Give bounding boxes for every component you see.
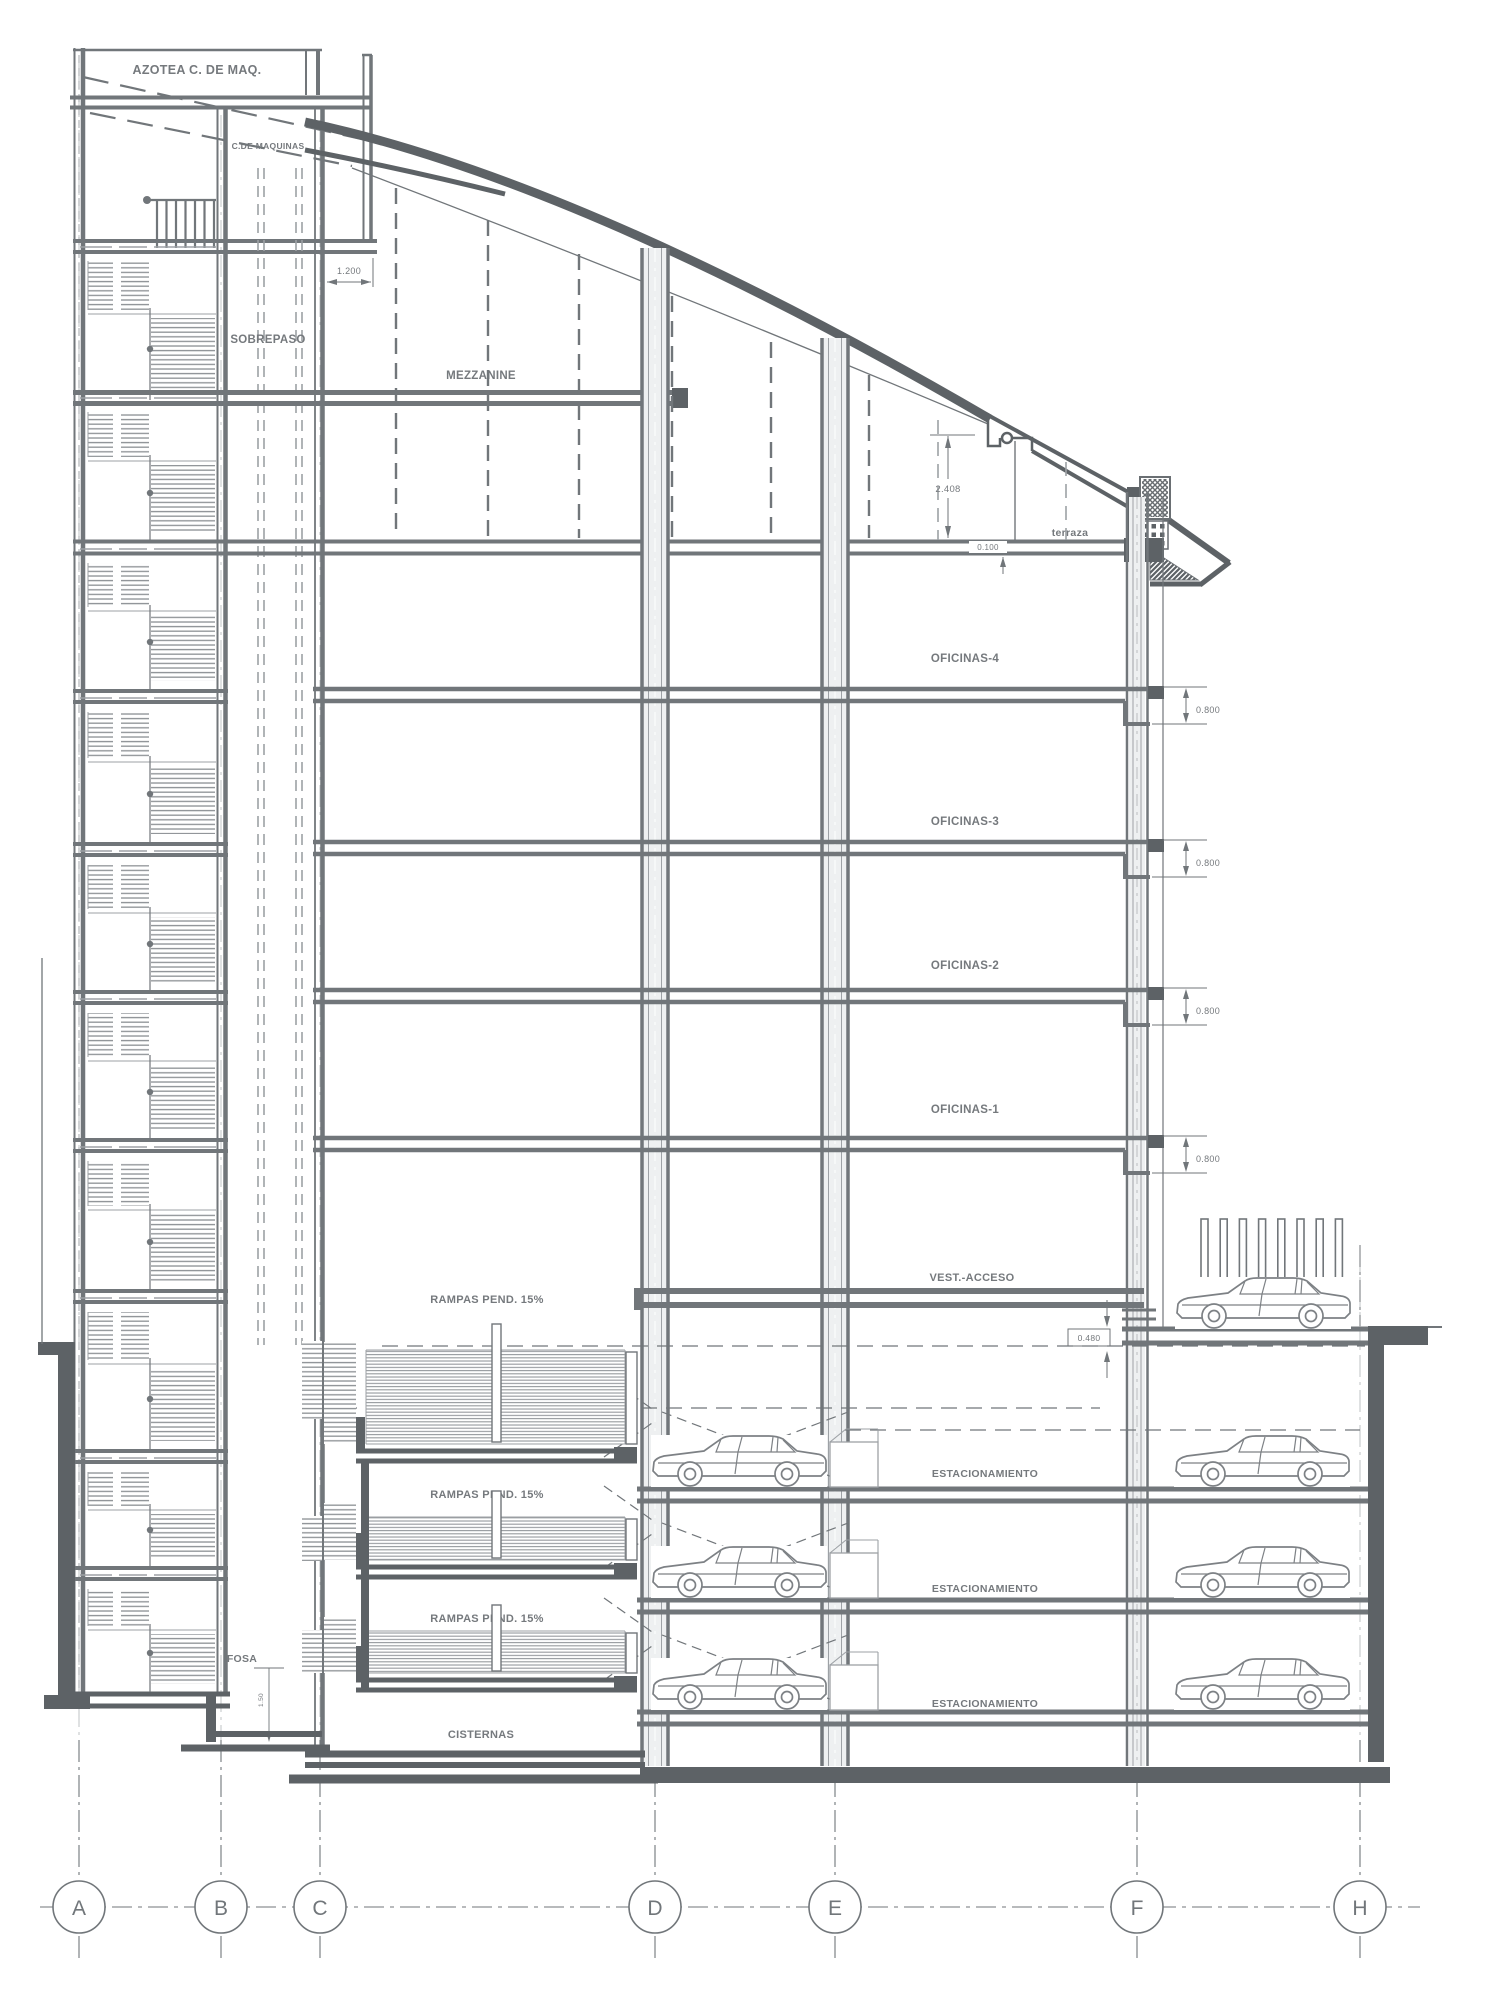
svg-text:0.800: 0.800 — [1196, 1006, 1220, 1016]
svg-text:OFICINAS-1: OFICINAS-1 — [931, 1104, 999, 1116]
svg-text:0.800: 0.800 — [1196, 858, 1220, 868]
svg-text:RAMPAS PEND. 15%: RAMPAS PEND. 15% — [430, 1489, 543, 1501]
svg-text:1.200: 1.200 — [337, 266, 361, 276]
svg-text:RAMPAS PEND. 15%: RAMPAS PEND. 15% — [430, 1294, 543, 1306]
svg-text:OFICINAS-2: OFICINAS-2 — [931, 960, 999, 972]
svg-text:B: B — [214, 1897, 228, 1920]
svg-text:MEZZANINE: MEZZANINE — [446, 370, 516, 382]
svg-text:CISTERNAS: CISTERNAS — [448, 1729, 514, 1741]
svg-text:E: E — [828, 1897, 842, 1920]
svg-text:SOBREPASO: SOBREPASO — [230, 334, 305, 346]
svg-text:OFICINAS-4: OFICINAS-4 — [931, 653, 999, 665]
svg-text:ESTACIONAMIENTO: ESTACIONAMIENTO — [932, 1468, 1038, 1480]
svg-text:0.480: 0.480 — [1078, 1333, 1101, 1343]
svg-text:0.800: 0.800 — [1196, 1154, 1220, 1164]
svg-text:2.408: 2.408 — [935, 484, 960, 495]
svg-text:A: A — [72, 1897, 86, 1920]
svg-text:FOSA: FOSA — [227, 1653, 257, 1665]
svg-text:RAMPAS PEND. 15%: RAMPAS PEND. 15% — [430, 1613, 543, 1625]
svg-text:H: H — [1352, 1897, 1367, 1920]
svg-text:VEST.-ACCESO: VEST.-ACCESO — [930, 1272, 1015, 1284]
svg-text:0.800: 0.800 — [1196, 705, 1220, 715]
svg-text:AZOTEA C. DE MAQ.: AZOTEA C. DE MAQ. — [133, 63, 262, 77]
svg-text:C: C — [312, 1897, 327, 1920]
svg-text:C.DE MAQUINAS: C.DE MAQUINAS — [232, 141, 305, 151]
svg-text:ESTACIONAMIENTO: ESTACIONAMIENTO — [932, 1698, 1038, 1710]
svg-text:0.100: 0.100 — [977, 543, 999, 552]
svg-text:ESTACIONAMIENTO: ESTACIONAMIENTO — [932, 1583, 1038, 1595]
svg-text:1.50: 1.50 — [258, 1693, 265, 1707]
svg-text:D: D — [647, 1897, 662, 1920]
svg-text:terraza: terraza — [1052, 527, 1089, 539]
svg-text:OFICINAS-3: OFICINAS-3 — [931, 816, 999, 828]
svg-text:F: F — [1131, 1897, 1144, 1920]
